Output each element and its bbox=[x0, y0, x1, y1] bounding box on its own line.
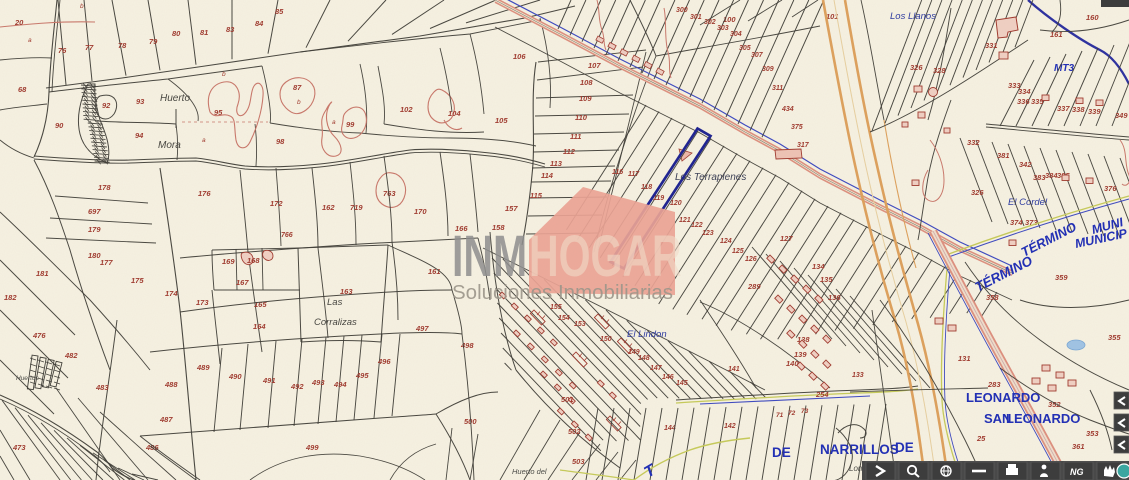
svg-text:NG: NG bbox=[1070, 467, 1084, 477]
